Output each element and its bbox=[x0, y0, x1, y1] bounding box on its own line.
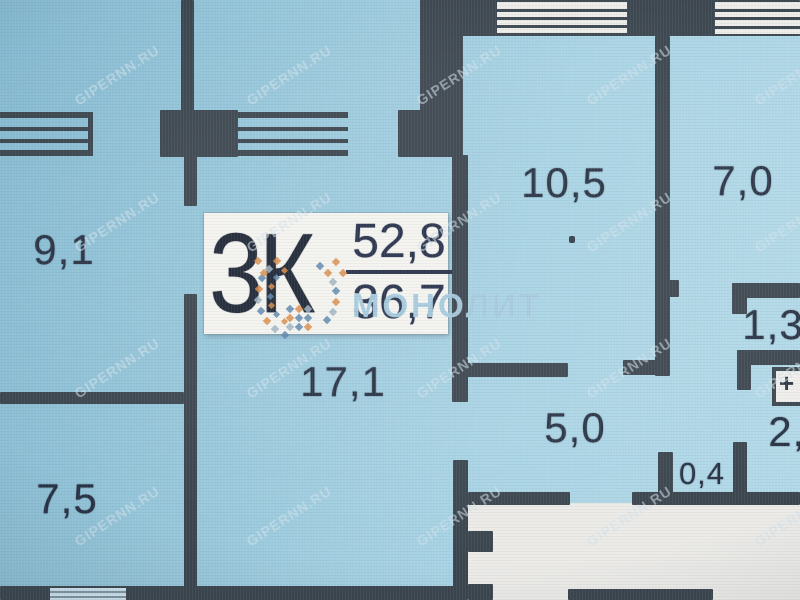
wall bbox=[453, 460, 468, 600]
total-area-value: 52,8 bbox=[346, 216, 452, 274]
room-area-label: 7,0 bbox=[712, 157, 773, 205]
wall bbox=[420, 0, 463, 112]
wall bbox=[655, 36, 670, 376]
room-area-label: 2,4 bbox=[768, 408, 800, 456]
floor-plan: + 3К 52,8 36,7 МОНОЛИТ 9,1 17,1 7,5 10,5… bbox=[0, 0, 800, 600]
site-watermark-text: GIPERNN.RU bbox=[752, 42, 800, 109]
window-symbol bbox=[50, 588, 126, 600]
stairwell-area bbox=[465, 503, 800, 600]
window-line bbox=[50, 591, 126, 593]
unit-rooms-label: 3К bbox=[209, 217, 311, 330]
wall bbox=[568, 589, 713, 600]
window-line bbox=[237, 139, 348, 143]
window-line bbox=[0, 139, 88, 143]
panel-plus-sign: + bbox=[779, 368, 794, 399]
wall bbox=[398, 110, 463, 157]
room-area-label: 1,3 bbox=[742, 301, 800, 349]
site-watermark-text: GIPERNN.RU bbox=[244, 42, 335, 109]
window-line bbox=[0, 127, 88, 131]
wall bbox=[658, 452, 673, 497]
vent-dot bbox=[569, 236, 575, 243]
window-symbol bbox=[237, 112, 348, 156]
window-line bbox=[50, 596, 126, 598]
wall bbox=[181, 0, 194, 111]
window-line bbox=[237, 127, 348, 131]
wall bbox=[733, 442, 747, 497]
wall bbox=[452, 363, 568, 377]
wall bbox=[0, 392, 184, 404]
room-area-label: 0,4 bbox=[679, 456, 725, 492]
window-symbol bbox=[0, 112, 93, 156]
wall bbox=[184, 156, 197, 206]
room-area-label: 10,5 bbox=[521, 159, 607, 207]
room-area-label: 7,5 bbox=[36, 475, 97, 523]
window-line bbox=[715, 17, 800, 20]
room-area-label: 9,1 bbox=[33, 226, 94, 274]
room-area-label: 5,0 bbox=[544, 404, 605, 452]
wall bbox=[160, 110, 238, 157]
window-line bbox=[497, 17, 627, 20]
window-line bbox=[497, 9, 627, 12]
wall bbox=[184, 294, 197, 588]
window-line bbox=[497, 25, 627, 28]
wall bbox=[632, 492, 800, 505]
window-line bbox=[715, 26, 800, 29]
wall bbox=[668, 280, 679, 297]
wall bbox=[468, 584, 493, 600]
developer-watermark-text: МОНОЛИТ bbox=[352, 287, 542, 325]
wall bbox=[468, 531, 493, 552]
window-line bbox=[715, 9, 800, 12]
site-watermark-text: GIPERNN.RU bbox=[72, 42, 163, 109]
window-symbol bbox=[715, 2, 800, 34]
wall bbox=[468, 492, 570, 505]
room-area-label: 17,1 bbox=[300, 358, 386, 406]
electric-panel-symbol: + bbox=[772, 367, 800, 406]
site-watermark-text: GIPERNN.RU bbox=[244, 483, 335, 550]
wall bbox=[737, 350, 751, 390]
window-symbol bbox=[497, 2, 627, 33]
